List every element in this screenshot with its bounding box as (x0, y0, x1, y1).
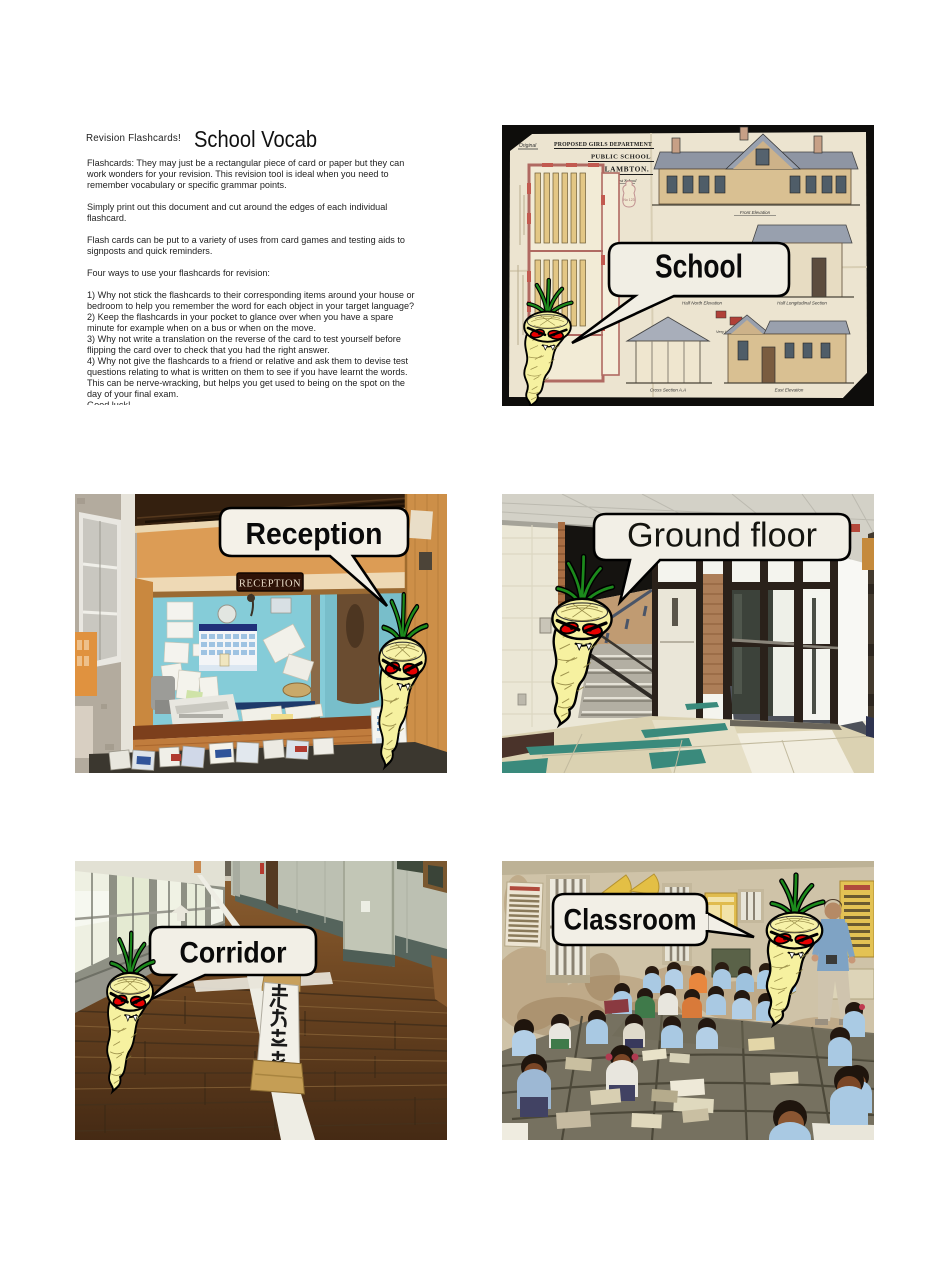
svg-text:No 123: No 123 (623, 198, 634, 202)
svg-text:RECEPTION: RECEPTION (239, 579, 301, 590)
svg-text:Front Elevation: Front Elevation (740, 210, 771, 215)
svg-text:School: School (655, 248, 743, 285)
svg-text:Cross Section A.A: Cross Section A.A (650, 388, 686, 393)
svg-text:Original: Original (519, 143, 537, 149)
svg-text:LAMBTON.: LAMBTON. (605, 165, 650, 174)
svg-text:Reception: Reception (246, 516, 383, 551)
svg-text:East Elevation: East Elevation (775, 388, 804, 393)
svg-text:Corridor: Corridor (180, 937, 287, 970)
svg-text:Ground floor: Ground floor (627, 517, 817, 555)
svg-text:PUBLIC SCHOOL: PUBLIC SCHOOL (591, 154, 651, 161)
svg-text:Half North Elevation: Half North Elevation (682, 301, 723, 306)
svg-text:Classroom: Classroom (564, 904, 697, 937)
svg-text:Half Longitudinal Section: Half Longitudinal Section (777, 301, 827, 306)
svg-text:PROPOSED GIRLS DEPARTMENT: PROPOSED GIRLS DEPARTMENT (554, 142, 652, 148)
